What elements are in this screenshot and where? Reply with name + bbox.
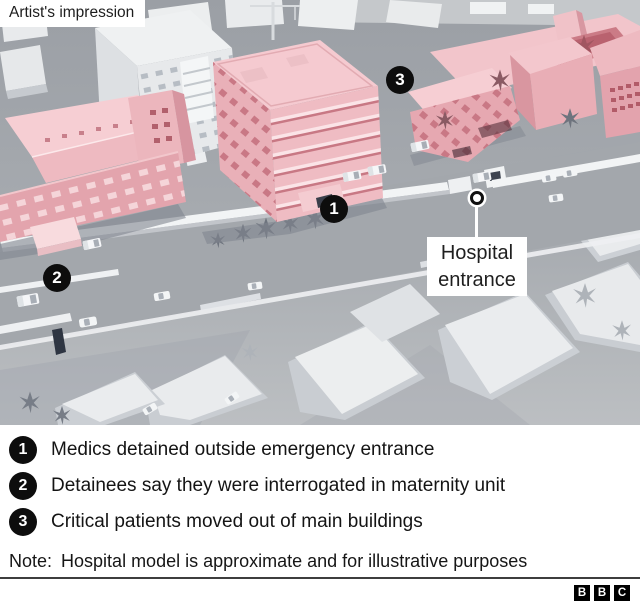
bbc-logo: B B C [574,585,630,601]
note-text: Hospital model is approximate and for il… [61,551,527,571]
bbc-logo-block-c: C [614,585,630,601]
artists-impression-label: Artist's impression [0,0,145,27]
hospital-entrance-label-line2: entrance [438,269,516,291]
legend-item-2: 2 Detainees say they were interrogated i… [9,472,640,500]
legend: 1 Medics detained outside emergency entr… [0,425,640,609]
hospital-entrance-label: Hospital entrance [427,237,527,296]
note: Note:Hospital model is approximate and f… [9,551,640,572]
news-graphic: Artist's impression 1 2 3 Hospital entra… [0,0,640,609]
map-marker-2: 2 [43,264,71,292]
map-marker-3: 3 [386,66,414,94]
hospital-entrance-label-line1: Hospital [441,242,513,264]
bbc-logo-block-b1: B [574,585,590,601]
hospital-entrance-connector [475,204,478,238]
legend-text-2: Detainees say they were interrogated in … [51,475,505,497]
hospital-render: Artist's impression 1 2 3 Hospital entra… [0,0,640,425]
note-label: Note: [9,551,52,571]
legend-badge-1: 1 [9,436,37,464]
legend-text-3: Critical patients moved out of main buil… [51,511,423,533]
map-marker-1: 1 [320,195,348,223]
bbc-logo-block-b2: B [594,585,610,601]
legend-badge-2: 2 [9,472,37,500]
legend-item-3: 3 Critical patients moved out of main bu… [9,508,640,536]
hospital-entrance-dot [470,191,484,205]
divider [0,577,640,579]
legend-text-1: Medics detained outside emergency entran… [51,439,434,461]
legend-item-1: 1 Medics detained outside emergency entr… [9,436,640,464]
legend-badge-3: 3 [9,508,37,536]
